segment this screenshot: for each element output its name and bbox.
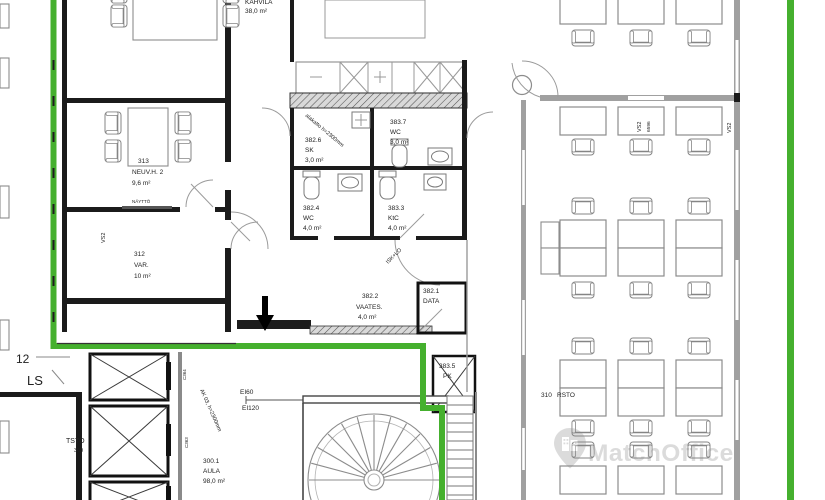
display-screen-symbol <box>122 206 172 209</box>
room-313-neuvh2 <box>105 108 213 209</box>
room-383-7-area: 3,0 m² <box>390 139 409 146</box>
vs2-top-label: VS2 <box>637 122 643 132</box>
toilet-icon <box>303 171 320 199</box>
room-383-3-area: 4,0 m² <box>388 225 407 232</box>
room-382-2-id: 382.2 <box>362 293 379 300</box>
exterior-wall-stubs <box>0 4 9 453</box>
room-313-name: NEUV.H. 2 <box>132 169 164 176</box>
watermark-text: MatchOffice <box>588 440 734 467</box>
room-382-4-area: 4,0 m² <box>303 225 322 232</box>
lift-code-1: C364 <box>182 369 187 380</box>
room-309-id: 309 <box>74 448 83 454</box>
elevator-shafts <box>90 352 182 500</box>
washbasin-icon <box>428 148 452 165</box>
lift-code-2: C363 <box>184 437 189 448</box>
toilet-icon <box>379 171 396 199</box>
room-300-1-area: 98,0 m² <box>203 478 226 485</box>
room-312-area: 10 m² <box>134 273 151 280</box>
room-312-door <box>231 212 268 249</box>
vs2-left-label: VS2 <box>101 233 107 243</box>
vs2-right-label: VS2 <box>727 123 733 133</box>
room-300-1-name: AULA <box>203 468 221 475</box>
room-310-name: RSTO <box>557 392 575 399</box>
room-383-7-id: 383.7 <box>390 119 407 126</box>
elevator-door <box>166 362 171 390</box>
dining-tables <box>541 0 722 494</box>
floor-plan-drawing: KAHVILA 38,0 m² 313 NEUV.H. 2 9,6 m² NÄY… <box>0 0 825 500</box>
room-382-1-id: 382.1 <box>423 288 440 295</box>
room-383-5-id: 383.5 <box>439 363 456 370</box>
elevator-door <box>166 424 171 456</box>
room-383-5-name: PK <box>443 373 452 380</box>
room-313-id: 313 <box>138 158 149 165</box>
room-382-2-name: VAATES. <box>356 304 383 311</box>
fire-rating-ei60: EI60 <box>240 389 254 396</box>
watermark-pin-icon <box>554 428 586 469</box>
meeting-room-top-furniture <box>111 0 239 40</box>
fire-rating-ei120: EI120 <box>242 405 259 412</box>
room-300-1-id: 300.1 <box>203 458 220 465</box>
kitchen-zone <box>290 0 466 93</box>
room-383-7-name: WC <box>390 129 401 136</box>
room-382-2-area: 4,0 m² <box>358 314 377 321</box>
room-310-id: 310 <box>541 392 552 399</box>
room-309-name: TSTO <box>66 438 85 445</box>
washbasin-icon <box>338 174 362 191</box>
room-kahvila-area: 38,0 m² <box>245 8 268 15</box>
vs2-top-number: 6596 <box>646 121 652 132</box>
room-382-4-id: 382.4 <box>303 205 320 212</box>
floor-plan-page: KAHVILA 38,0 m² 313 NEUV.H. 2 9,6 m² NÄY… <box>0 0 825 500</box>
room-382-6-name: SK <box>305 147 314 154</box>
room-382-1-name: DATA <box>423 298 440 305</box>
room-313-area: 9,6 m² <box>132 180 151 187</box>
straight-stair-flight <box>447 396 473 500</box>
room-383-3-id: 383.3 <box>388 205 405 212</box>
spiral-staircase <box>303 396 448 500</box>
room-382-6-id: 382.6 <box>305 137 322 144</box>
room-kahvila-name: KAHVILA <box>245 0 273 6</box>
elevator-door <box>166 486 171 500</box>
washbasin-icon <box>424 174 446 190</box>
room-312-id: 312 <box>134 251 145 258</box>
room-382-4-name: WC <box>303 215 314 222</box>
room-383-3-name: KtC <box>388 215 399 222</box>
wc-block <box>262 60 493 285</box>
grid-marker-ls: LS <box>27 373 43 388</box>
room-382-6-area: 3,0 m² <box>305 157 324 164</box>
grid-marker-number: 12 <box>16 352 30 366</box>
aula-ceiling-note: AK 03, h=2300mm <box>198 388 222 433</box>
sink-icon <box>352 112 370 128</box>
room-312-name: VAR. <box>134 262 149 269</box>
naytto-label: NÄYTTÖ <box>132 198 151 204</box>
